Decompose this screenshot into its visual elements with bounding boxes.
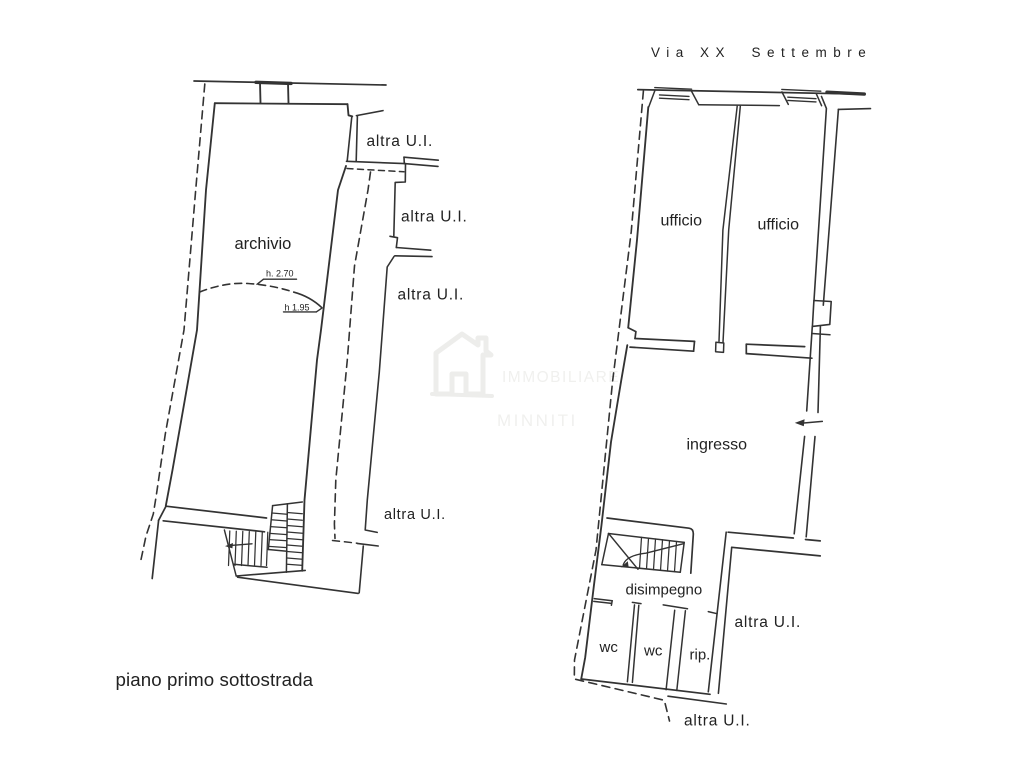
svg-text:rip.: rip. (690, 647, 711, 664)
svg-text:disimpegno: disimpegno (626, 582, 703, 599)
svg-text:archivio: archivio (235, 235, 292, 253)
svg-text:wc: wc (599, 639, 619, 656)
svg-text:altra U.I.: altra U.I. (401, 209, 468, 226)
svg-text:altra U.I.: altra U.I. (398, 287, 465, 304)
svg-text:piano primo sottostrada: piano primo sottostrada (116, 669, 314, 690)
svg-text:altra U.I.: altra U.I. (367, 133, 434, 150)
svg-text:altra U.I.: altra U.I. (735, 614, 802, 631)
svg-text:ingresso: ingresso (687, 437, 748, 454)
svg-text:ufficio: ufficio (758, 217, 800, 234)
svg-text:MINNITI: MINNITI (497, 411, 578, 430)
svg-text:altra U.I.: altra U.I. (684, 713, 751, 730)
svg-text:h. 2.70: h. 2.70 (266, 268, 294, 278)
svg-text:wc: wc (643, 643, 663, 660)
svg-text:ufficio: ufficio (661, 213, 703, 230)
svg-text:IMMOBILIARE: IMMOBILIARE (502, 369, 620, 386)
svg-text:h 1.95: h 1.95 (285, 303, 310, 313)
svg-text:Via XX Settembre: Via XX Settembre (651, 45, 872, 60)
svg-text:altra U.I.: altra U.I. (384, 507, 446, 523)
